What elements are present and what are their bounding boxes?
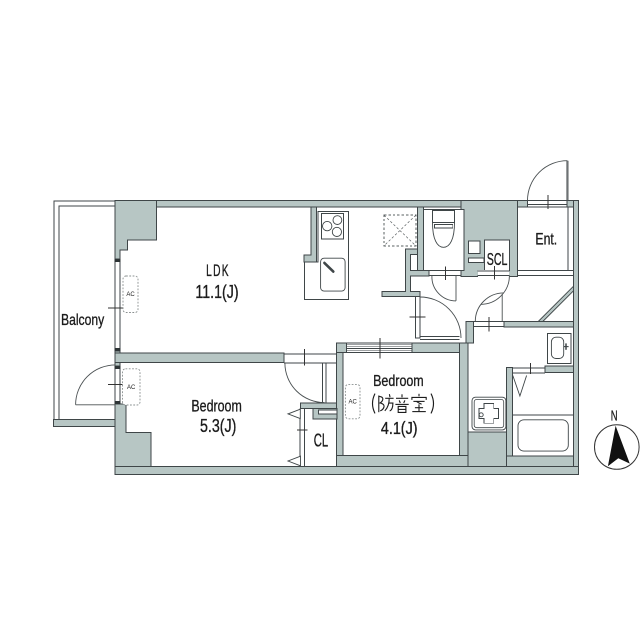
svg-text:5.3(J): 5.3(J) — [200, 416, 236, 436]
svg-text:AC: AC — [349, 400, 358, 406]
svg-text:N: N — [611, 407, 618, 424]
svg-text:11.1(J): 11.1(J) — [195, 282, 238, 302]
svg-text:Bedroom: Bedroom — [191, 398, 241, 416]
svg-text:SCL: SCL — [487, 250, 508, 269]
svg-text:LDK: LDK — [206, 262, 230, 280]
svg-text:CL: CL — [314, 431, 329, 452]
svg-text:AC: AC — [127, 385, 136, 391]
svg-text:4.1(J): 4.1(J) — [381, 420, 418, 439]
svg-text:Ent.: Ent. — [535, 231, 557, 249]
svg-text:Bedroom: Bedroom — [373, 373, 424, 391]
svg-text:AC: AC — [126, 292, 135, 298]
svg-text:Balcony: Balcony — [61, 311, 105, 329]
